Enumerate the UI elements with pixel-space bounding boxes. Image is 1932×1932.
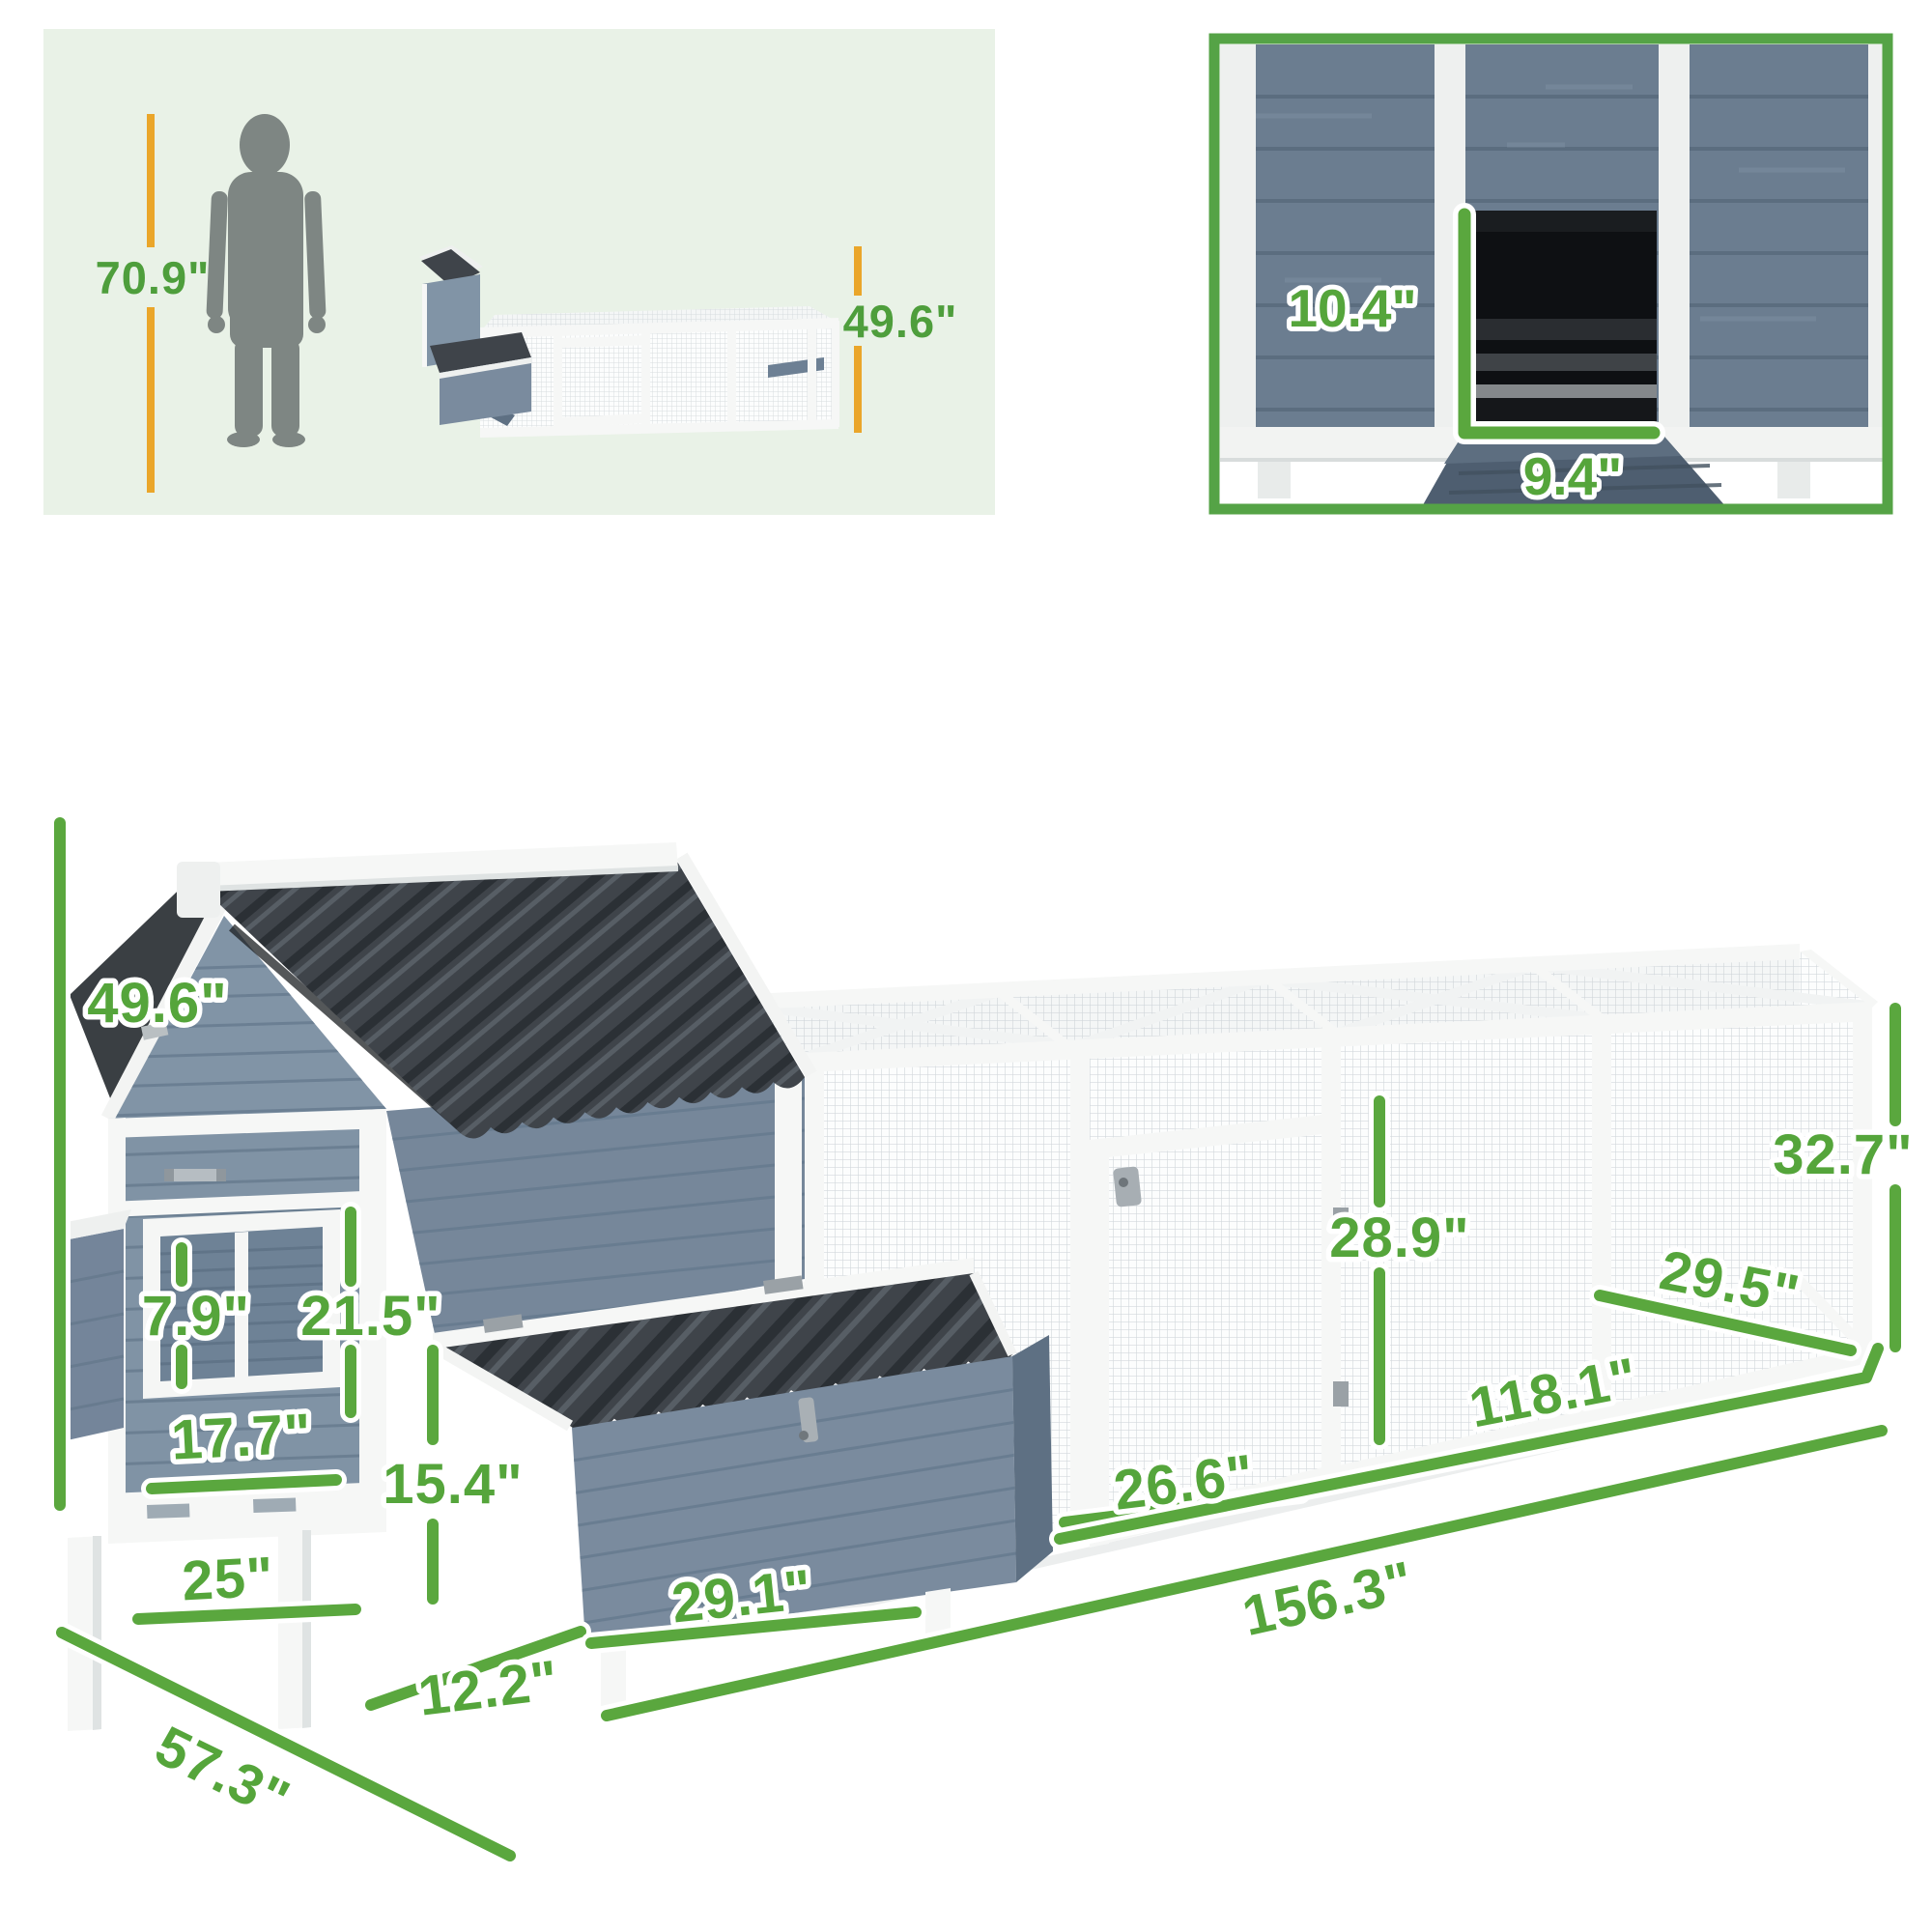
product-dimension-diagram: 70.9" 49.6" — [0, 0, 1932, 1932]
run-door-hinge-bottom — [1333, 1381, 1349, 1406]
window-width-label: 17.7" — [170, 1402, 314, 1472]
overall-height-label: 49.6" — [87, 972, 227, 1035]
pop-door-height-label: 10.4" — [1288, 278, 1416, 338]
mini-coop-height-label: 49.6" — [843, 296, 958, 347]
pop-door-width-label: 9.4" — [1523, 446, 1623, 506]
nest-box-side — [1012, 1335, 1053, 1582]
main-diagram: 49.6" 7.9" 21.5" 17.7" 25" 15.4" 12.2" 5… — [54, 823, 1914, 1856]
run-height-label: 32.7" — [1773, 1123, 1913, 1186]
pop-door-detail-panel: 10.4" 9.4" — [1214, 39, 1892, 510]
window-height-label: 7.9" — [142, 1285, 250, 1348]
pop-door-opening — [1473, 211, 1657, 423]
coop-corner-post — [775, 1077, 802, 1282]
nest-box-height-label: 15.4" — [383, 1453, 523, 1516]
scale-panel: 70.9" 49.6" — [43, 29, 995, 515]
run-door-latch — [1113, 1166, 1142, 1207]
person-height-label: 70.9" — [96, 252, 211, 303]
nest-box-depth-label: 12.2" — [415, 1649, 562, 1728]
diagram-canvas: 70.9" 49.6" — [0, 0, 1932, 1932]
coop-door-height-label: 21.5" — [300, 1285, 440, 1348]
coop-front-width-label: 25" — [181, 1546, 275, 1613]
run-door-height-label: 28.9" — [1329, 1207, 1469, 1269]
